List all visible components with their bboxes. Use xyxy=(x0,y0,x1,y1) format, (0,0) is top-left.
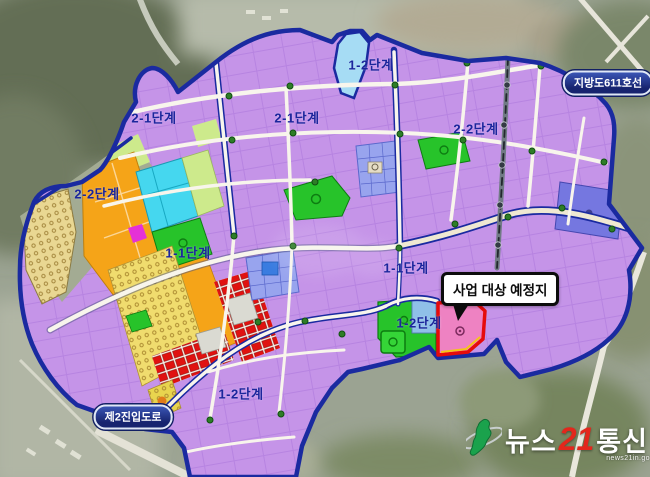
phase-label-1-1-left: 1-1단계 xyxy=(165,243,210,262)
road-label-provincial-611: 지방도611호선 xyxy=(563,71,650,96)
phase-label-2-2-left: 2-2단계 xyxy=(74,184,119,203)
phase-label-1-1-right: 1-1단계 xyxy=(383,258,428,277)
news21-watermark: 뉴스 21 통신 news21in.go xyxy=(466,414,648,464)
watermark-subtext: news21in.go xyxy=(606,455,650,462)
phase-label-1-2-bottom: 1-2단계 xyxy=(218,384,263,403)
phase-label-2-1-center: 2-1단계 xyxy=(274,108,319,127)
news-photo-map: 1-2단계 2-1단계 2-1단계 2-2단계 2-2단계 1-1단계 1-1단… xyxy=(0,0,650,477)
watermark-text-21: 21 xyxy=(559,421,595,458)
watermark-text-news: 뉴스 xyxy=(505,420,557,459)
callout-pointer xyxy=(453,304,469,321)
phase-label-2-1-left: 2-1단계 xyxy=(131,108,176,127)
phase-label-1-2-top: 1-2단계 xyxy=(348,55,393,74)
project-site-callout: 사업 대상 예정지 xyxy=(441,272,559,306)
phase-label-2-2-right: 2-2단계 xyxy=(453,119,498,138)
phase-label-1-2-right: 1-2단계 xyxy=(396,313,441,332)
watermark-text-tongsin: 통신 xyxy=(596,420,648,459)
callout-text: 사업 대상 예정지 xyxy=(441,272,559,306)
plan-map-canvas xyxy=(0,0,650,477)
korea-peninsula-icon xyxy=(466,416,502,462)
road-label-second-access: 제2진입도로 xyxy=(94,405,173,430)
